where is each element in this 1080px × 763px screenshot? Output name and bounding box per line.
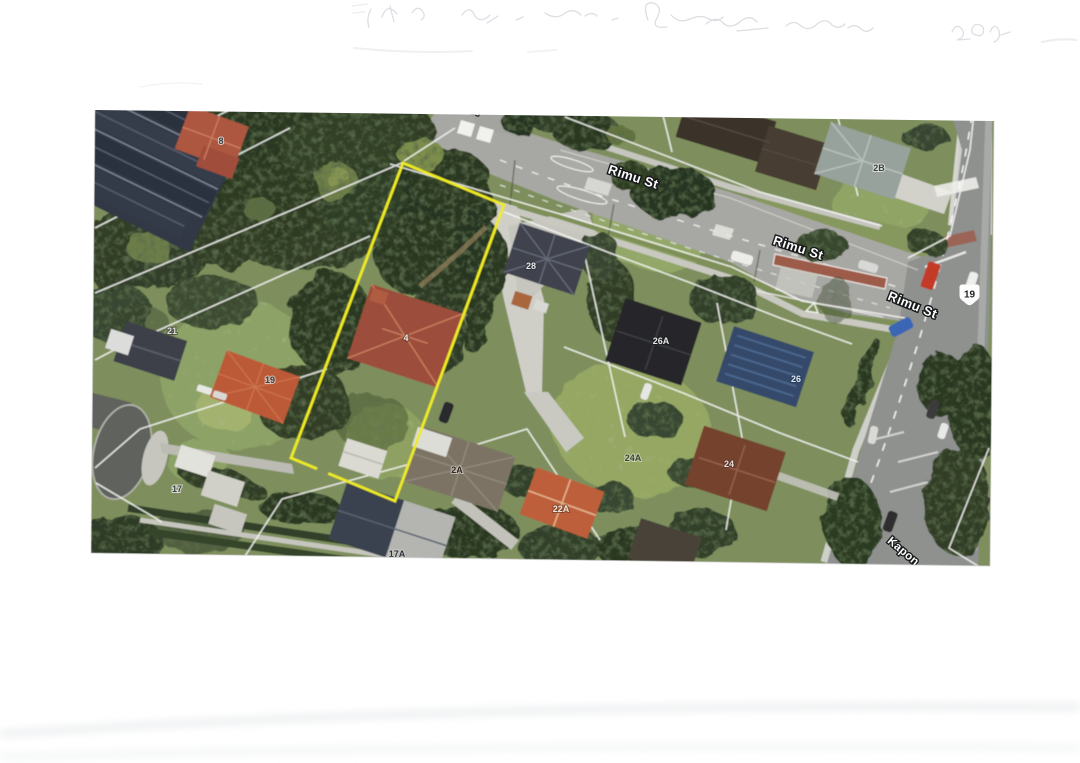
svg-text:26: 26 [791, 374, 801, 384]
svg-text:8: 8 [218, 136, 223, 146]
svg-text:21: 21 [167, 326, 177, 336]
svg-text:22A: 22A [553, 504, 570, 514]
svg-text:19: 19 [265, 375, 275, 385]
svg-text:26A: 26A [653, 336, 670, 346]
svg-text:28: 28 [526, 261, 536, 271]
svg-text:19: 19 [964, 290, 976, 301]
svg-text:2A: 2A [451, 465, 463, 475]
svg-text:24A: 24A [625, 453, 642, 463]
svg-text:24: 24 [724, 459, 734, 469]
svg-text:4: 4 [403, 333, 408, 343]
svg-text:2B: 2B [873, 163, 885, 173]
svg-text:17: 17 [172, 484, 182, 494]
